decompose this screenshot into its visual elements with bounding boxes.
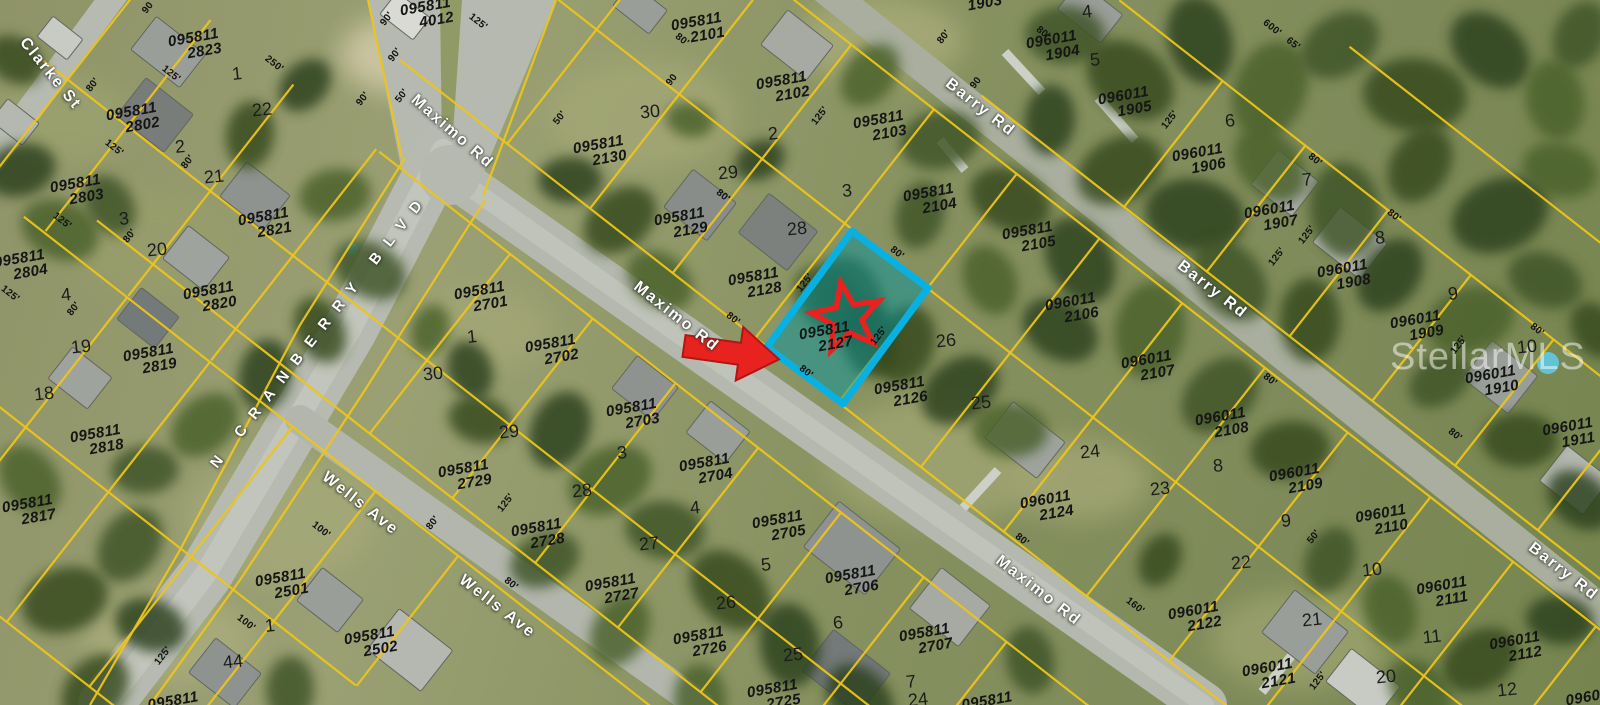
aerial-parcel-map: StellarMLS Clarke StMaximo RdN CRANBERRY… xyxy=(0,0,1600,705)
aerial-imagery-layer xyxy=(0,0,1600,705)
